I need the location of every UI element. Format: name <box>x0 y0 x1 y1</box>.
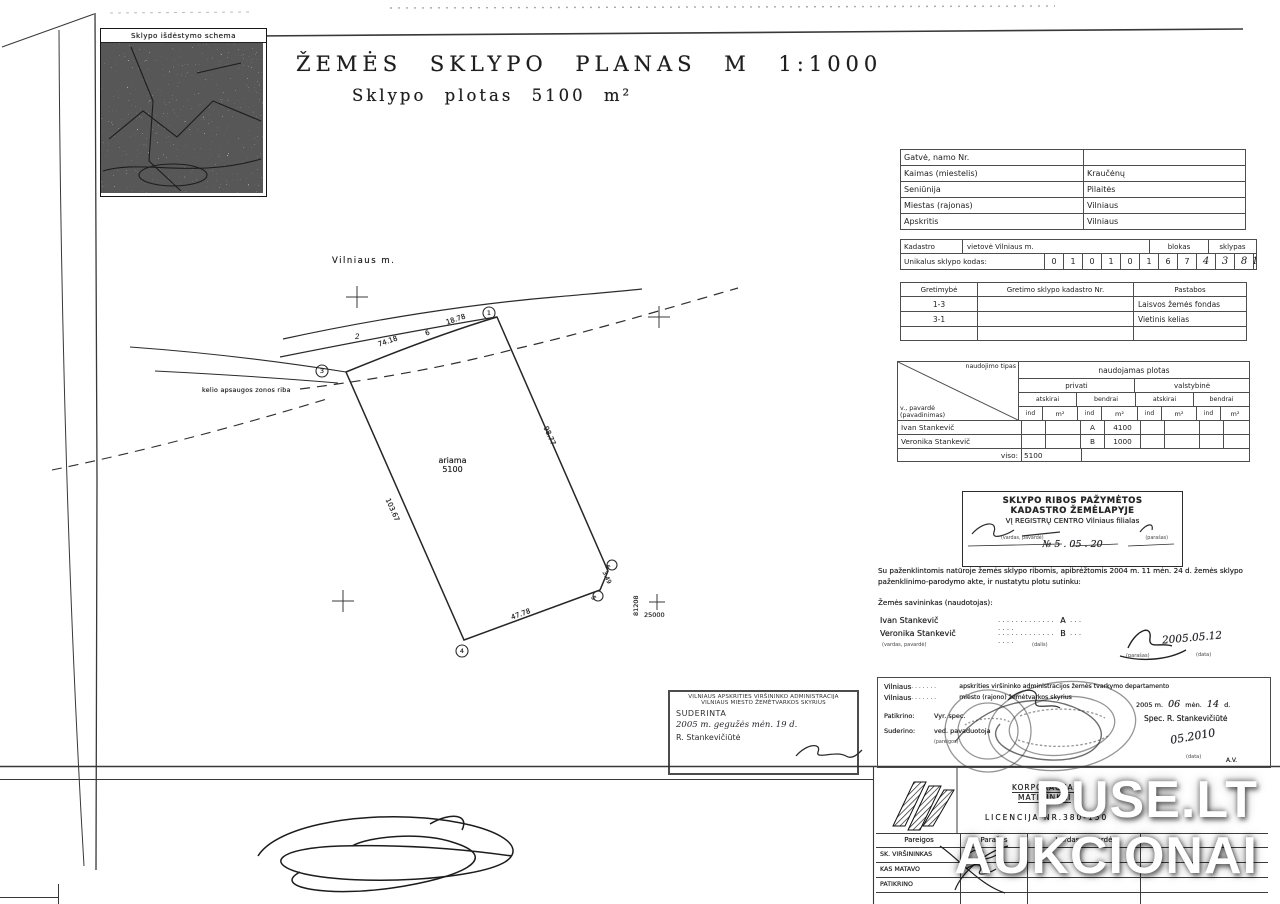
stamp-sublabel: (parašas) <box>1145 536 1168 541</box>
empty-cell <box>1081 448 1249 461</box>
date-sublabel: (data) <box>1196 652 1211 658</box>
ind-header: ind <box>1077 406 1101 420</box>
stamp-line: VILNIAUS MIESTO ŽEMĖTVARKOS SKYRIUS <box>673 700 854 706</box>
table-row: 3-1 Vietinis kelias <box>900 311 1246 326</box>
adjacency-cell <box>977 326 1133 340</box>
approval-date-day: 14 <box>1207 699 1219 710</box>
registry-stamp: SKLYPO RIBOS PAŽYMĖTOS KADASTRO ŽEMĖLAPY… <box>962 491 1183 567</box>
ind-header: ind <box>1018 406 1042 420</box>
address-label: Kaimas (miestelis) <box>901 166 1084 182</box>
owner-name-label: v., pavardė (pavadinimas) <box>900 405 972 419</box>
owner-intro: Žemės savininkas (naudotojas): <box>878 598 993 607</box>
separate-header: atskirai <box>1018 392 1076 406</box>
share-area: 1000 <box>1104 434 1140 448</box>
position-sublabel: (pareigos) <box>934 740 958 745</box>
owner-name: Ivan Stankevič <box>897 420 1021 434</box>
code-digit: 6 <box>1158 253 1177 269</box>
empty-cell <box>1021 434 1045 448</box>
approval-city: Vilniaus <box>884 694 911 702</box>
approval-office: miesto (rajono) žemėtvarkos skyrius <box>959 694 1072 702</box>
watermark-line-2: AUKCIONAI <box>920 828 1258 884</box>
table-row: Seniūnija Pilaitės <box>901 182 1246 198</box>
table-row: Gatvė, namo Nr. <box>901 150 1246 166</box>
watermark-line-1: PUSE.LT <box>920 772 1258 828</box>
approval-line-1: Vilniaus . . . . . . . apskrities viršin… <box>884 683 1264 691</box>
adjacency-table: Gretimybė Gretimo sklypo kadastro Nr. Pa… <box>900 282 1247 341</box>
m2-header: m² <box>1042 406 1077 420</box>
share-sublabel: (dalis) <box>1032 642 1048 648</box>
table-row: Ivan Stankevič A 4100 <box>897 420 1249 434</box>
specialist-name: Spec. R. Stankevičiūtė <box>1144 714 1228 723</box>
approval-date-day-label: d. <box>1224 701 1230 709</box>
approval-line-2: Vilniaus . . . . . . . miesto (rajono) ž… <box>884 694 1134 702</box>
land-use-table: naudojimo tipas v., pavardė (pavadinimas… <box>897 361 1250 462</box>
code-digit-handwritten: 4 <box>1196 253 1215 269</box>
empty-cell <box>1223 434 1249 448</box>
table-row: Veronika Stankevič B 1000 <box>897 434 1249 448</box>
address-value: Kraučėnų <box>1084 166 1246 182</box>
location-minimap: Sklypo išdėstymo schema <box>100 28 267 197</box>
code-digit: 1 <box>1139 253 1158 269</box>
suderinta-stamp: VILNIAUS APSKRITIES VIRŠININKO ADMINISTR… <box>668 690 859 775</box>
unique-code-label: Unikalus sklypo kodas: <box>900 253 1044 269</box>
adjacency-cell: 1-3 <box>900 296 977 311</box>
empty-cell <box>1164 420 1199 434</box>
share-index: A <box>1080 420 1104 434</box>
approval-block: Vilniaus . . . . . . . apskrities viršin… <box>877 677 1271 768</box>
watermark: PUSE.LT AUKCIONAI <box>920 772 1258 884</box>
minimap-texture <box>101 43 263 193</box>
diagonal-header-cell: naudojimo tipas v., pavardė (pavadinimas… <box>897 361 1018 420</box>
separate-header: atskirai <box>1135 392 1193 406</box>
cadastre-label: Kadastro <box>900 239 962 253</box>
large-signature <box>258 816 513 891</box>
empty-cell <box>1021 420 1045 434</box>
empty-cell <box>1199 420 1223 434</box>
agreed-label: Suderino: <box>884 727 915 735</box>
adjacency-cell <box>900 326 977 340</box>
approval-date-year: 2005 m. <box>1136 701 1163 709</box>
address-table: Gatvė, namo Nr. Kaimas (miestelis) Krauč… <box>900 149 1246 230</box>
code-digit: 0 <box>1120 253 1139 269</box>
survey-crosses <box>332 286 670 612</box>
name-sublabel: (vardas, pavardė) <box>882 642 926 648</box>
private-header: privati <box>1018 378 1134 392</box>
stamp-handwritten-date: 2005 m. gegužės mėn. 19 d. <box>673 720 854 730</box>
code-digit-handwritten: 3 <box>1215 253 1234 269</box>
vertex-circles <box>316 307 617 657</box>
cadastre-place: vietovė Vilniaus m. <box>962 239 1149 253</box>
adjacency-cell <box>977 311 1133 326</box>
adjacency-cell: 3-1 <box>900 311 977 326</box>
m2-header: m² <box>1220 406 1249 420</box>
code-digit: 1 <box>1101 253 1120 269</box>
address-value: Vilniaus <box>1084 214 1246 230</box>
seal-place-label: A.V. <box>1226 757 1237 764</box>
ind-header: ind <box>1196 406 1220 420</box>
approval-date-month: 06 <box>1168 699 1180 710</box>
approval-dept: apskrities viršininko administracijos že… <box>959 683 1169 691</box>
total-label: viso: <box>897 448 1021 461</box>
table-row: Apskritis Vilniaus <box>901 214 1246 230</box>
adjacency-header-1: Gretimybė <box>900 282 977 296</box>
address-label: Miestas (rajonas) <box>901 198 1084 214</box>
protection-zone-dashes <box>52 288 738 470</box>
adjacency-cell <box>977 296 1133 311</box>
position-2: ved. pavaduotoja <box>934 727 991 735</box>
owner-name: Veronika Stankevič <box>897 434 1021 448</box>
address-value: Pilaitės <box>1084 182 1246 198</box>
m2-header: m² <box>1101 406 1137 420</box>
adjacency-cell: Vietinis kelias <box>1133 311 1246 326</box>
dotted-leader: . . . <box>1070 629 1092 645</box>
minimap-title: Sklypo išdėstymo schema <box>101 29 266 43</box>
agreement-text: Su paženklintomis natūroje žemės sklypo … <box>878 566 1261 587</box>
road-lines <box>130 289 642 383</box>
owner-share: B <box>1056 629 1070 645</box>
usage-type-label: naudojimo tipas <box>965 363 1016 370</box>
sklypas-header: sklypas <box>1208 239 1256 253</box>
code-digit-handwritten: 8 <box>1234 253 1253 269</box>
dotted-leader: . . . . . . . <box>911 683 959 691</box>
scanned-land-plan-document: { "watermark": {"line1": "PUSE.LT", "lin… <box>0 0 1280 904</box>
stamp-line: SKLYPO RIBOS PAŽYMĖTOS <box>963 496 1182 506</box>
table-row: Kaimas (miestelis) Kraučėnų <box>901 166 1246 182</box>
blokas-header: blokas <box>1149 239 1208 253</box>
approval-date-month-label: mėn. <box>1185 701 1202 709</box>
code-digit: 7 <box>1177 253 1196 269</box>
adjacency-header-3: Pastabos <box>1133 282 1246 296</box>
share-area: 4100 <box>1104 420 1140 434</box>
dotted-leader: . . . . . . . <box>911 694 959 702</box>
used-area-header: naudojamas plotas <box>1018 361 1249 378</box>
table-row: 1-3 Laisvos žemės fondas <box>900 296 1246 311</box>
table-row <box>900 326 1246 340</box>
checked-label: Patikrino: <box>884 712 915 720</box>
empty-cell <box>1045 434 1080 448</box>
joint-header: bendrai <box>1076 392 1135 406</box>
adjacency-cell: Laisvos žemės fondas <box>1133 296 1246 311</box>
stamp-sublabel: (vardas, pavardė) <box>1001 536 1044 541</box>
plot-boundary <box>346 317 608 640</box>
empty-cell <box>1140 420 1164 434</box>
ind-header: ind <box>1137 406 1161 420</box>
share-index: B <box>1080 434 1104 448</box>
empty-cell <box>1045 420 1080 434</box>
code-digit: 0 <box>1082 253 1101 269</box>
approval-city: Vilniaus <box>884 683 911 691</box>
code-digit: 1 <box>1063 253 1082 269</box>
joint-header: bendrai <box>1193 392 1249 406</box>
stamp-line: KADASTRO ŽEMĖLAPYJE <box>963 506 1182 516</box>
code-digit-handwritten: 1 <box>1253 253 1256 269</box>
total-area: 5100 <box>1021 448 1081 461</box>
adjacency-header-2: Gretimo sklypo kadastro Nr. <box>977 282 1133 296</box>
approval-date: 2005 m. 06 mėn. 14 d. <box>1136 692 1230 711</box>
address-label: Seniūnija <box>901 182 1084 198</box>
address-value <box>1084 150 1246 166</box>
document-title: ŽEMĖS SKLYPO PLANAS M 1:1000 <box>296 52 882 76</box>
empty-cell <box>1164 434 1199 448</box>
stamp-line: VĮ REGISTRŲ CENTRO Vilniaus filialas <box>963 516 1182 525</box>
state-header: valstybinė <box>1134 378 1249 392</box>
table-row: Miestas (rajonas) Vilniaus <box>901 198 1246 214</box>
cadastre-code-block: Kadastro vietovė Vilniaus m. blokas skly… <box>900 239 1257 270</box>
address-value: Vilniaus <box>1084 198 1246 214</box>
suderinta-label: SUDERINTA <box>673 709 854 718</box>
total-row: viso: 5100 <box>897 448 1249 461</box>
m2-header: m² <box>1161 406 1196 420</box>
empty-cell <box>1223 420 1249 434</box>
stamp-signer-name: R. Stankevičiūtė <box>673 733 854 742</box>
empty-cell <box>1199 434 1223 448</box>
signature-sublabel: (parašas) <box>1126 653 1150 659</box>
date-sublabel: (data) <box>1186 754 1201 760</box>
adjacency-cell <box>1133 326 1246 340</box>
address-label: Apskritis <box>901 214 1084 230</box>
position-1: Vyr. spec. <box>934 712 965 720</box>
code-digit: 0 <box>1044 253 1063 269</box>
address-label: Gatvė, namo Nr. <box>901 150 1084 166</box>
document-subtitle: Sklypo plotas 5100 m² <box>352 86 632 105</box>
handwritten-date: 05.2010 <box>1169 726 1216 747</box>
empty-cell <box>1140 434 1164 448</box>
